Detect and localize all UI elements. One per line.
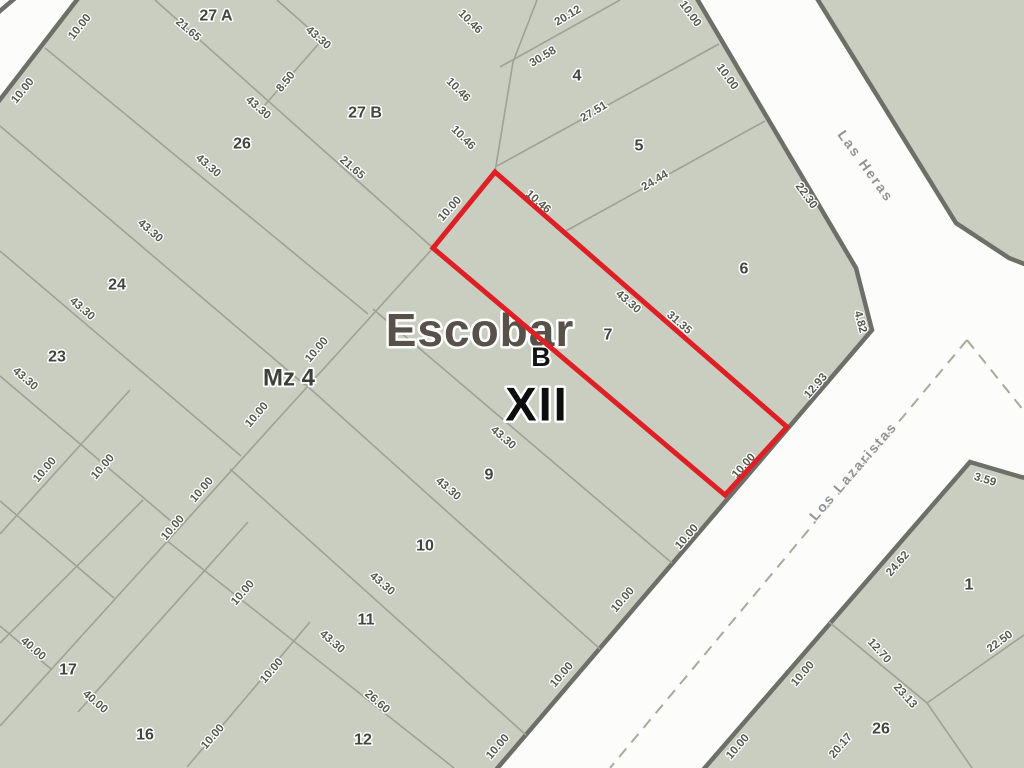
parcel-number: 12 [354, 732, 372, 749]
cadastral-map: 10.0010.0021.6543.308.5043.3043.3043.304… [0, 0, 1024, 768]
parcel-number: 5 [635, 138, 644, 155]
parcel-number: 27 B [348, 105, 382, 122]
parcel-number: 26 [233, 136, 251, 153]
parcel-number: 10 [416, 538, 434, 555]
parcel-number: 17 [59, 662, 77, 679]
parcel-number: 9 [485, 467, 494, 484]
parcel-number: 6 [740, 261, 749, 278]
parcel-number: 23 [48, 349, 66, 366]
parcel-number: 24 [108, 277, 126, 294]
parcel-number: 27 A [199, 8, 233, 25]
parcel-number: 26 [872, 721, 890, 738]
parcel-number: 7 [604, 327, 613, 344]
parcel-number: 16 [136, 727, 154, 744]
block-label: Mz 4 [263, 365, 316, 392]
zone-roman-label: XII [505, 378, 568, 431]
parcel-number: 11 [358, 612, 375, 629]
parcel-number: 4 [573, 68, 582, 85]
parcel-number: 1 [965, 577, 974, 594]
